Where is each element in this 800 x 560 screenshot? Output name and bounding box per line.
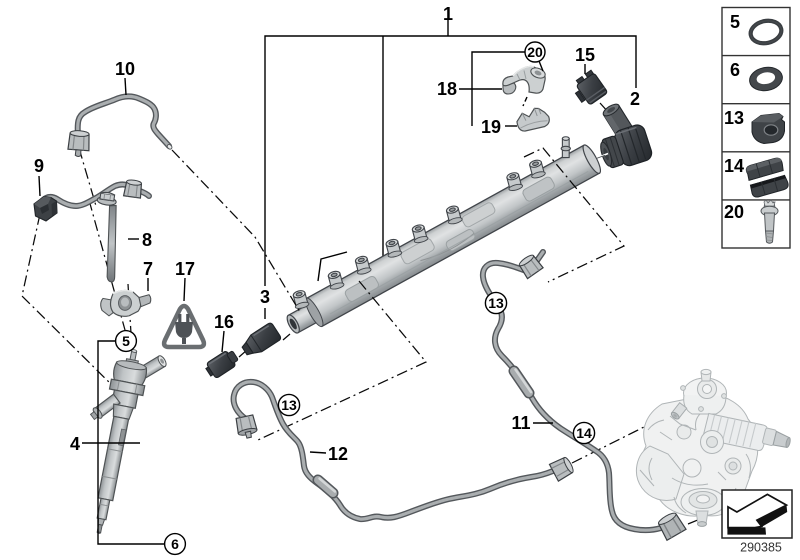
svg-text:18: 18 bbox=[437, 79, 457, 99]
svg-text:13: 13 bbox=[281, 397, 297, 413]
svg-text:16: 16 bbox=[214, 312, 234, 332]
svg-text:9: 9 bbox=[34, 156, 44, 176]
svg-text:2: 2 bbox=[630, 89, 640, 109]
svg-text:20: 20 bbox=[724, 202, 744, 222]
svg-text:17: 17 bbox=[175, 259, 195, 279]
svg-text:8: 8 bbox=[142, 230, 152, 250]
svg-text:290385: 290385 bbox=[740, 541, 782, 555]
svg-text:1: 1 bbox=[443, 4, 453, 24]
svg-text:14: 14 bbox=[724, 156, 744, 176]
svg-text:20: 20 bbox=[527, 44, 543, 60]
svg-text:4: 4 bbox=[70, 434, 80, 454]
svg-text:12: 12 bbox=[328, 444, 348, 464]
svg-text:6: 6 bbox=[730, 60, 740, 80]
svg-text:13: 13 bbox=[488, 295, 504, 311]
svg-text:10: 10 bbox=[115, 59, 135, 79]
svg-text:7: 7 bbox=[143, 259, 153, 279]
svg-text:19: 19 bbox=[481, 117, 501, 137]
svg-text:11: 11 bbox=[511, 413, 530, 433]
svg-text:6: 6 bbox=[171, 536, 179, 552]
svg-text:15: 15 bbox=[575, 45, 595, 65]
svg-text:3: 3 bbox=[260, 287, 270, 307]
svg-text:14: 14 bbox=[576, 425, 592, 441]
svg-text:13: 13 bbox=[724, 108, 744, 128]
svg-text:5: 5 bbox=[122, 333, 130, 349]
svg-text:5: 5 bbox=[730, 12, 740, 32]
